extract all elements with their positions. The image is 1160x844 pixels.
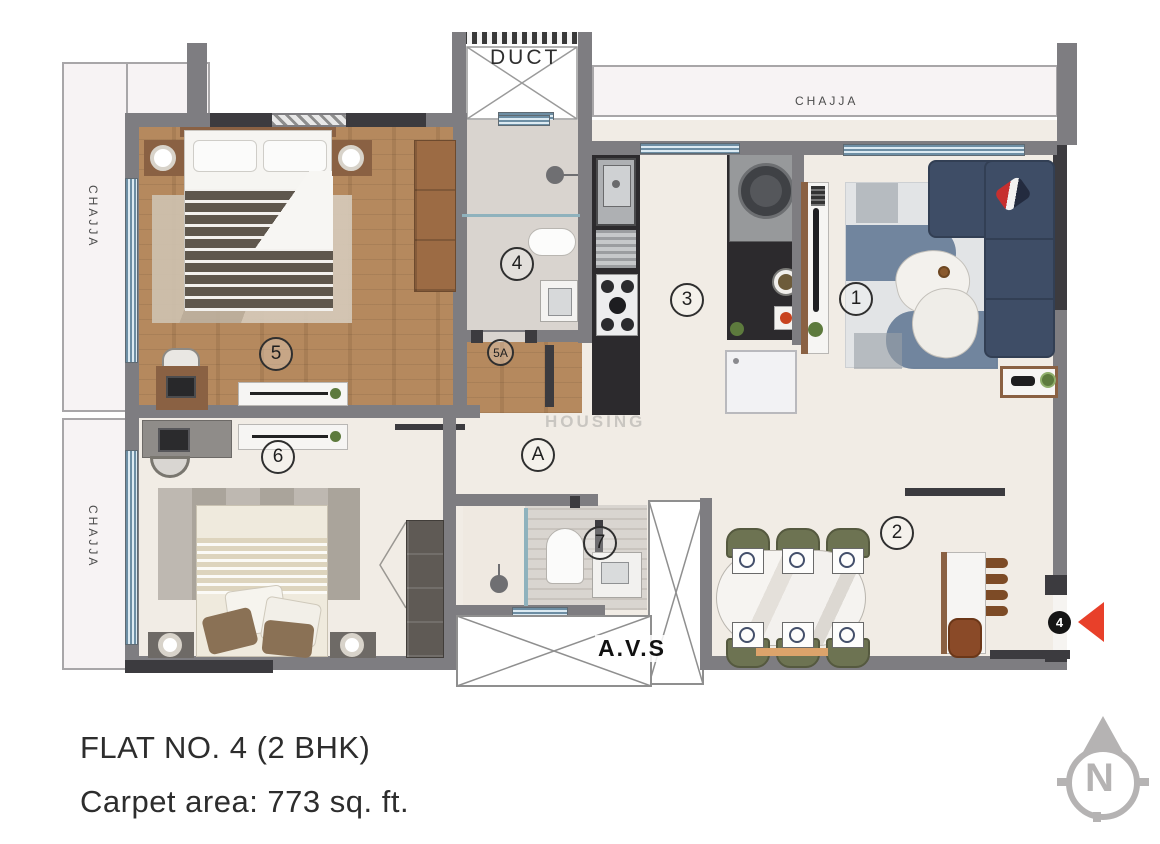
- passage-5a-floor: [460, 335, 582, 413]
- bedroom2-wardrobe: [406, 520, 444, 658]
- plant: [808, 322, 823, 337]
- shower-arm: [562, 174, 578, 176]
- kitchen-stove: [596, 274, 638, 336]
- shoe: [986, 558, 1008, 568]
- fridge: [725, 350, 797, 414]
- kitchen-plant: [730, 322, 744, 336]
- wall-bathroom1-kitchen: [578, 113, 592, 343]
- pillow-brown: [261, 619, 314, 658]
- wall-top-bedroom1-dark1: [210, 113, 272, 127]
- pillar-top-left: [187, 43, 207, 123]
- wall-bottom-dark: [125, 660, 273, 673]
- place-setting: [732, 622, 764, 648]
- foyer-bench: [990, 650, 1070, 659]
- duct-shaft: DUCT: [452, 32, 592, 122]
- living-wall-stub: [905, 488, 1005, 496]
- bedroom1-bed: [184, 130, 332, 310]
- room-marker-bedroom1: 5: [259, 337, 293, 371]
- chajja-left-bottom-label: CHAJJA: [86, 505, 100, 568]
- wall-bedroom2-bath2: [443, 418, 456, 670]
- room-marker-passage: 5A: [487, 339, 514, 366]
- bedroom2-bed: [196, 505, 328, 657]
- duct-label: DUCT: [490, 46, 560, 70]
- bathroom1-top-window: [498, 115, 550, 126]
- avs-label: A.V.S: [595, 635, 669, 662]
- bathroom1-glass-line: [462, 214, 580, 217]
- entry-jamb-top: [1045, 575, 1067, 595]
- coffee-cup: [938, 266, 950, 278]
- plant: [1040, 372, 1056, 388]
- bathroom1-sink: [540, 280, 578, 322]
- compass-tick-east: [1139, 778, 1149, 786]
- toilet: [528, 228, 576, 256]
- wall-top-bedroom1-dark2: [346, 113, 426, 127]
- place-setting: [832, 622, 864, 648]
- sofa-cushion-line: [986, 298, 1053, 300]
- wardrobe-door-swing: [378, 520, 406, 610]
- room-marker-kitchen: 3: [670, 283, 704, 317]
- shower-arm-2: [498, 564, 500, 576]
- bathroom2-shower-floor: [463, 505, 525, 610]
- toilet-2: [546, 528, 584, 584]
- shoe: [986, 606, 1008, 616]
- bathroom2-jamb: [570, 496, 580, 508]
- bathroom1-jamb-right: [525, 330, 537, 343]
- place-setting: [782, 548, 814, 574]
- kitchen-top-window: [640, 143, 740, 154]
- lamp: [158, 633, 182, 657]
- chajja-top-label: CHAJJA: [795, 94, 858, 108]
- bedroom2-throw: [197, 538, 327, 594]
- room-marker-living: 1: [839, 282, 873, 316]
- duct-top-hatch: [452, 32, 592, 44]
- duct-left-wall: [452, 32, 466, 122]
- wall-top-bedroom1-vent: [272, 115, 346, 125]
- duct-right-wall: [578, 32, 592, 122]
- place-setting: [832, 548, 864, 574]
- compass-tick-south: [1093, 812, 1101, 822]
- shower-head-2: [490, 575, 508, 593]
- bathroom2-glass: [524, 508, 528, 606]
- foyer-console-wood: [941, 552, 947, 654]
- lamp: [338, 145, 364, 171]
- pillow: [263, 140, 327, 172]
- kitchen-drainboard: [596, 230, 636, 268]
- bedroom2-left-window: [125, 450, 138, 645]
- living-top-window: [843, 144, 1025, 156]
- place-setting: [782, 622, 814, 648]
- pillar-top-right: [1057, 43, 1077, 145]
- washing-machine: [729, 150, 799, 242]
- bedroom2-console-rod: [252, 435, 328, 438]
- compass-tick-west: [1057, 778, 1067, 786]
- room-marker-dining: 2: [880, 516, 914, 550]
- pillow-brown: [201, 607, 259, 656]
- place-setting: [732, 548, 764, 574]
- shoe: [986, 574, 1008, 584]
- tv-console-wood: [801, 182, 808, 354]
- bedroom1-wardrobe: [414, 140, 456, 292]
- bedroom1-laptop: [166, 376, 196, 398]
- plant: [330, 388, 341, 399]
- bedroom1-left-window: [125, 178, 138, 363]
- room-marker-bath2: 7: [583, 526, 617, 560]
- lamp: [150, 145, 176, 171]
- bedroom1-console-rod: [250, 392, 328, 395]
- room-marker-corridor: A: [521, 438, 555, 472]
- remote: [1011, 376, 1035, 386]
- tv-device: [811, 186, 825, 206]
- entry-arrow: [1078, 602, 1104, 642]
- tv-panel: [813, 208, 819, 312]
- bedroom1-folded-sheet: [237, 171, 333, 249]
- passage-door-leaf: [545, 345, 554, 407]
- compass-north-label: N: [1085, 756, 1114, 801]
- entry-flat-number-badge: 4: [1048, 611, 1071, 634]
- room-marker-bedroom2: 6: [261, 440, 295, 474]
- room-marker-bath1: 4: [500, 247, 534, 281]
- kitchen-sink: [596, 158, 636, 226]
- plant: [330, 431, 341, 442]
- sofa-cushion-line: [986, 238, 1053, 240]
- pillow: [193, 140, 257, 172]
- wall-dining-shaft: [700, 498, 712, 670]
- shoe: [986, 590, 1008, 600]
- wall-right-dark-top: [1053, 145, 1067, 310]
- foyer-pouf: [948, 618, 982, 658]
- dining-bench: [756, 648, 828, 656]
- compass: N: [1055, 712, 1155, 827]
- lamp: [340, 633, 364, 657]
- flat-title: FLAT NO. 4 (2 BHK): [80, 730, 370, 766]
- watermark: HOUSING: [545, 412, 645, 432]
- chajja-top: [592, 65, 1058, 117]
- floor-plan-canvas: CHAJJA CHAJJA CHAJJA DUCT: [0, 0, 1160, 844]
- chajja-left-top-label: CHAJJA: [86, 185, 100, 248]
- bedroom2-laptop: [158, 428, 190, 452]
- carpet-area: Carpet area: 773 sq. ft.: [80, 784, 409, 820]
- bathroom1-jamb-left: [471, 330, 483, 343]
